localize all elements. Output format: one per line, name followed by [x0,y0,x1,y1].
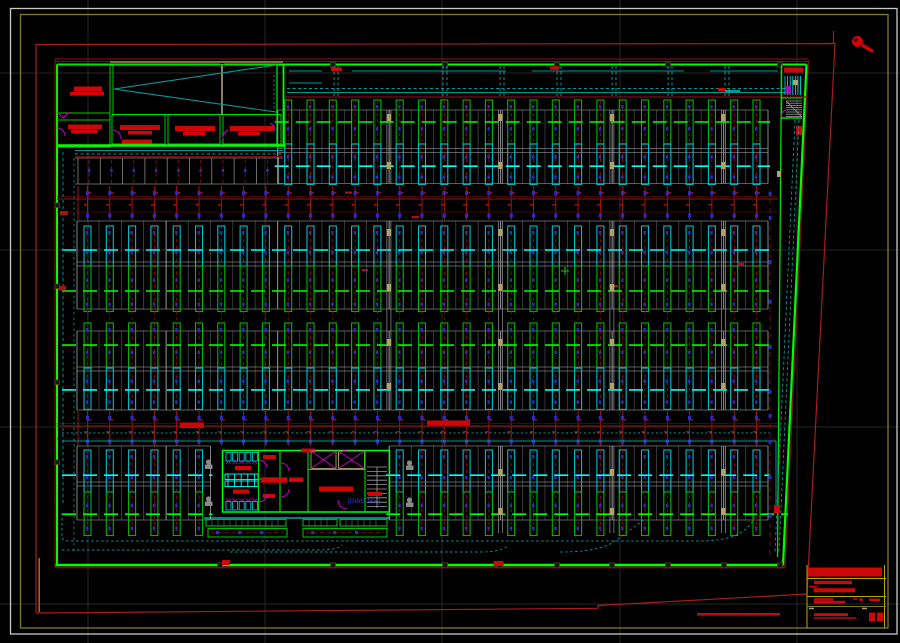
svg-text:[DWG.bbs]: [DWG.bbs] [348,498,380,505]
